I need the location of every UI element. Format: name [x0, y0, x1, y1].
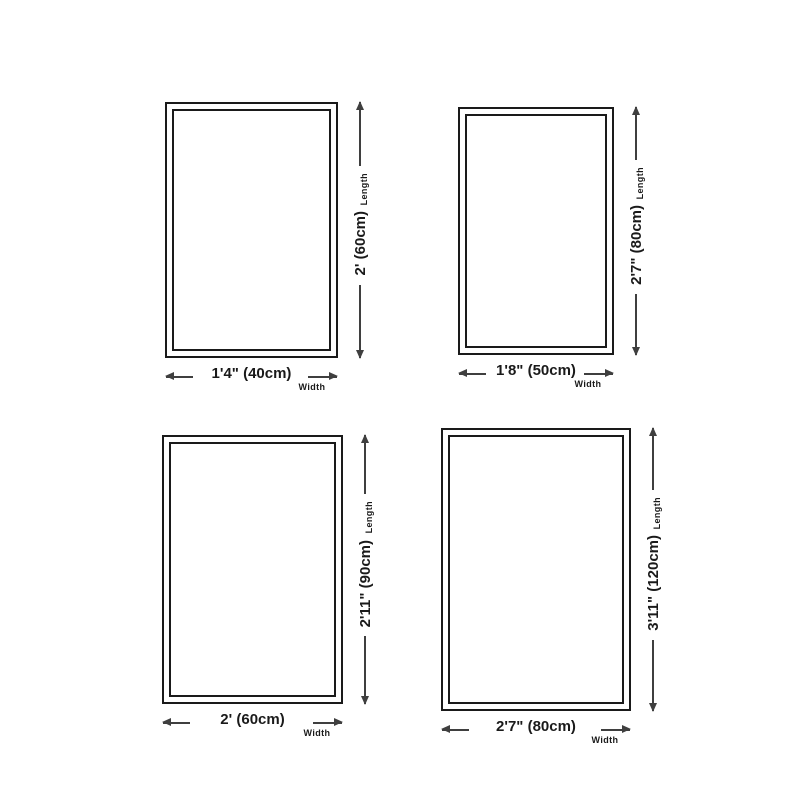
width-value: 2' (60cm)	[162, 711, 343, 728]
length-value: 3'11" (120cm)	[645, 535, 662, 631]
length-value: 2'11" (90cm)	[357, 540, 374, 627]
size-chart-canvas: Length 2' (60cm) 1'4" (40cm) Width Lengt…	[0, 0, 800, 800]
arrow-right-icon	[313, 722, 342, 724]
size-diagram-50x80: Length 2'7" (80cm) 1'8" (50cm) Width	[458, 107, 614, 355]
width-label: Width	[290, 382, 334, 392]
length-dimension: Length 2'11" (90cm)	[352, 435, 378, 704]
width-label: Width	[583, 735, 627, 745]
frame-outer-rect	[458, 107, 614, 355]
width-dimension: 2' (60cm) Width	[162, 710, 343, 742]
frame-inner-rect	[465, 114, 607, 348]
width-value: 2'7" (80cm)	[441, 718, 631, 735]
frame-outer-rect	[441, 428, 631, 711]
width-label: Width	[566, 379, 610, 389]
arrow-down-icon	[635, 294, 637, 355]
arrow-up-icon	[652, 428, 654, 490]
frame-inner-rect	[169, 442, 336, 697]
width-value: 1'4" (40cm)	[165, 365, 338, 382]
arrow-right-icon	[584, 373, 613, 375]
size-diagram-80x120: Length 3'11" (120cm) 2'7" (80cm) Width	[441, 428, 631, 711]
length-label: Length	[652, 497, 662, 529]
width-dimension: 2'7" (80cm) Width	[441, 717, 631, 749]
length-dimension: Length 2'7" (80cm)	[623, 107, 649, 355]
length-label: Length	[635, 167, 645, 199]
length-dimension: Length 3'11" (120cm)	[640, 428, 666, 711]
length-value: 2'7" (80cm)	[628, 205, 645, 285]
arrow-up-icon	[364, 435, 366, 494]
arrow-right-icon	[308, 376, 337, 378]
size-diagram-60x90: Length 2'11" (90cm) 2' (60cm) Width	[162, 435, 343, 704]
frame-outer-rect	[162, 435, 343, 704]
size-diagram-40x60: Length 2' (60cm) 1'4" (40cm) Width	[165, 102, 338, 358]
length-dimension: Length 2' (60cm)	[347, 102, 373, 358]
arrow-right-icon	[601, 729, 630, 731]
arrow-up-icon	[359, 102, 361, 166]
width-dimension: 1'8" (50cm) Width	[458, 361, 614, 393]
arrow-down-icon	[364, 636, 366, 704]
length-label: Length	[359, 173, 369, 205]
frame-inner-rect	[172, 109, 331, 351]
length-value: 2' (60cm)	[352, 211, 369, 275]
arrow-down-icon	[652, 640, 654, 711]
arrow-down-icon	[359, 285, 361, 358]
width-value: 1'8" (50cm)	[458, 362, 614, 379]
frame-outer-rect	[165, 102, 338, 358]
length-label: Length	[364, 501, 374, 533]
width-dimension: 1'4" (40cm) Width	[165, 364, 338, 396]
frame-inner-rect	[448, 435, 624, 704]
width-label: Width	[295, 728, 339, 738]
arrow-up-icon	[635, 107, 637, 160]
